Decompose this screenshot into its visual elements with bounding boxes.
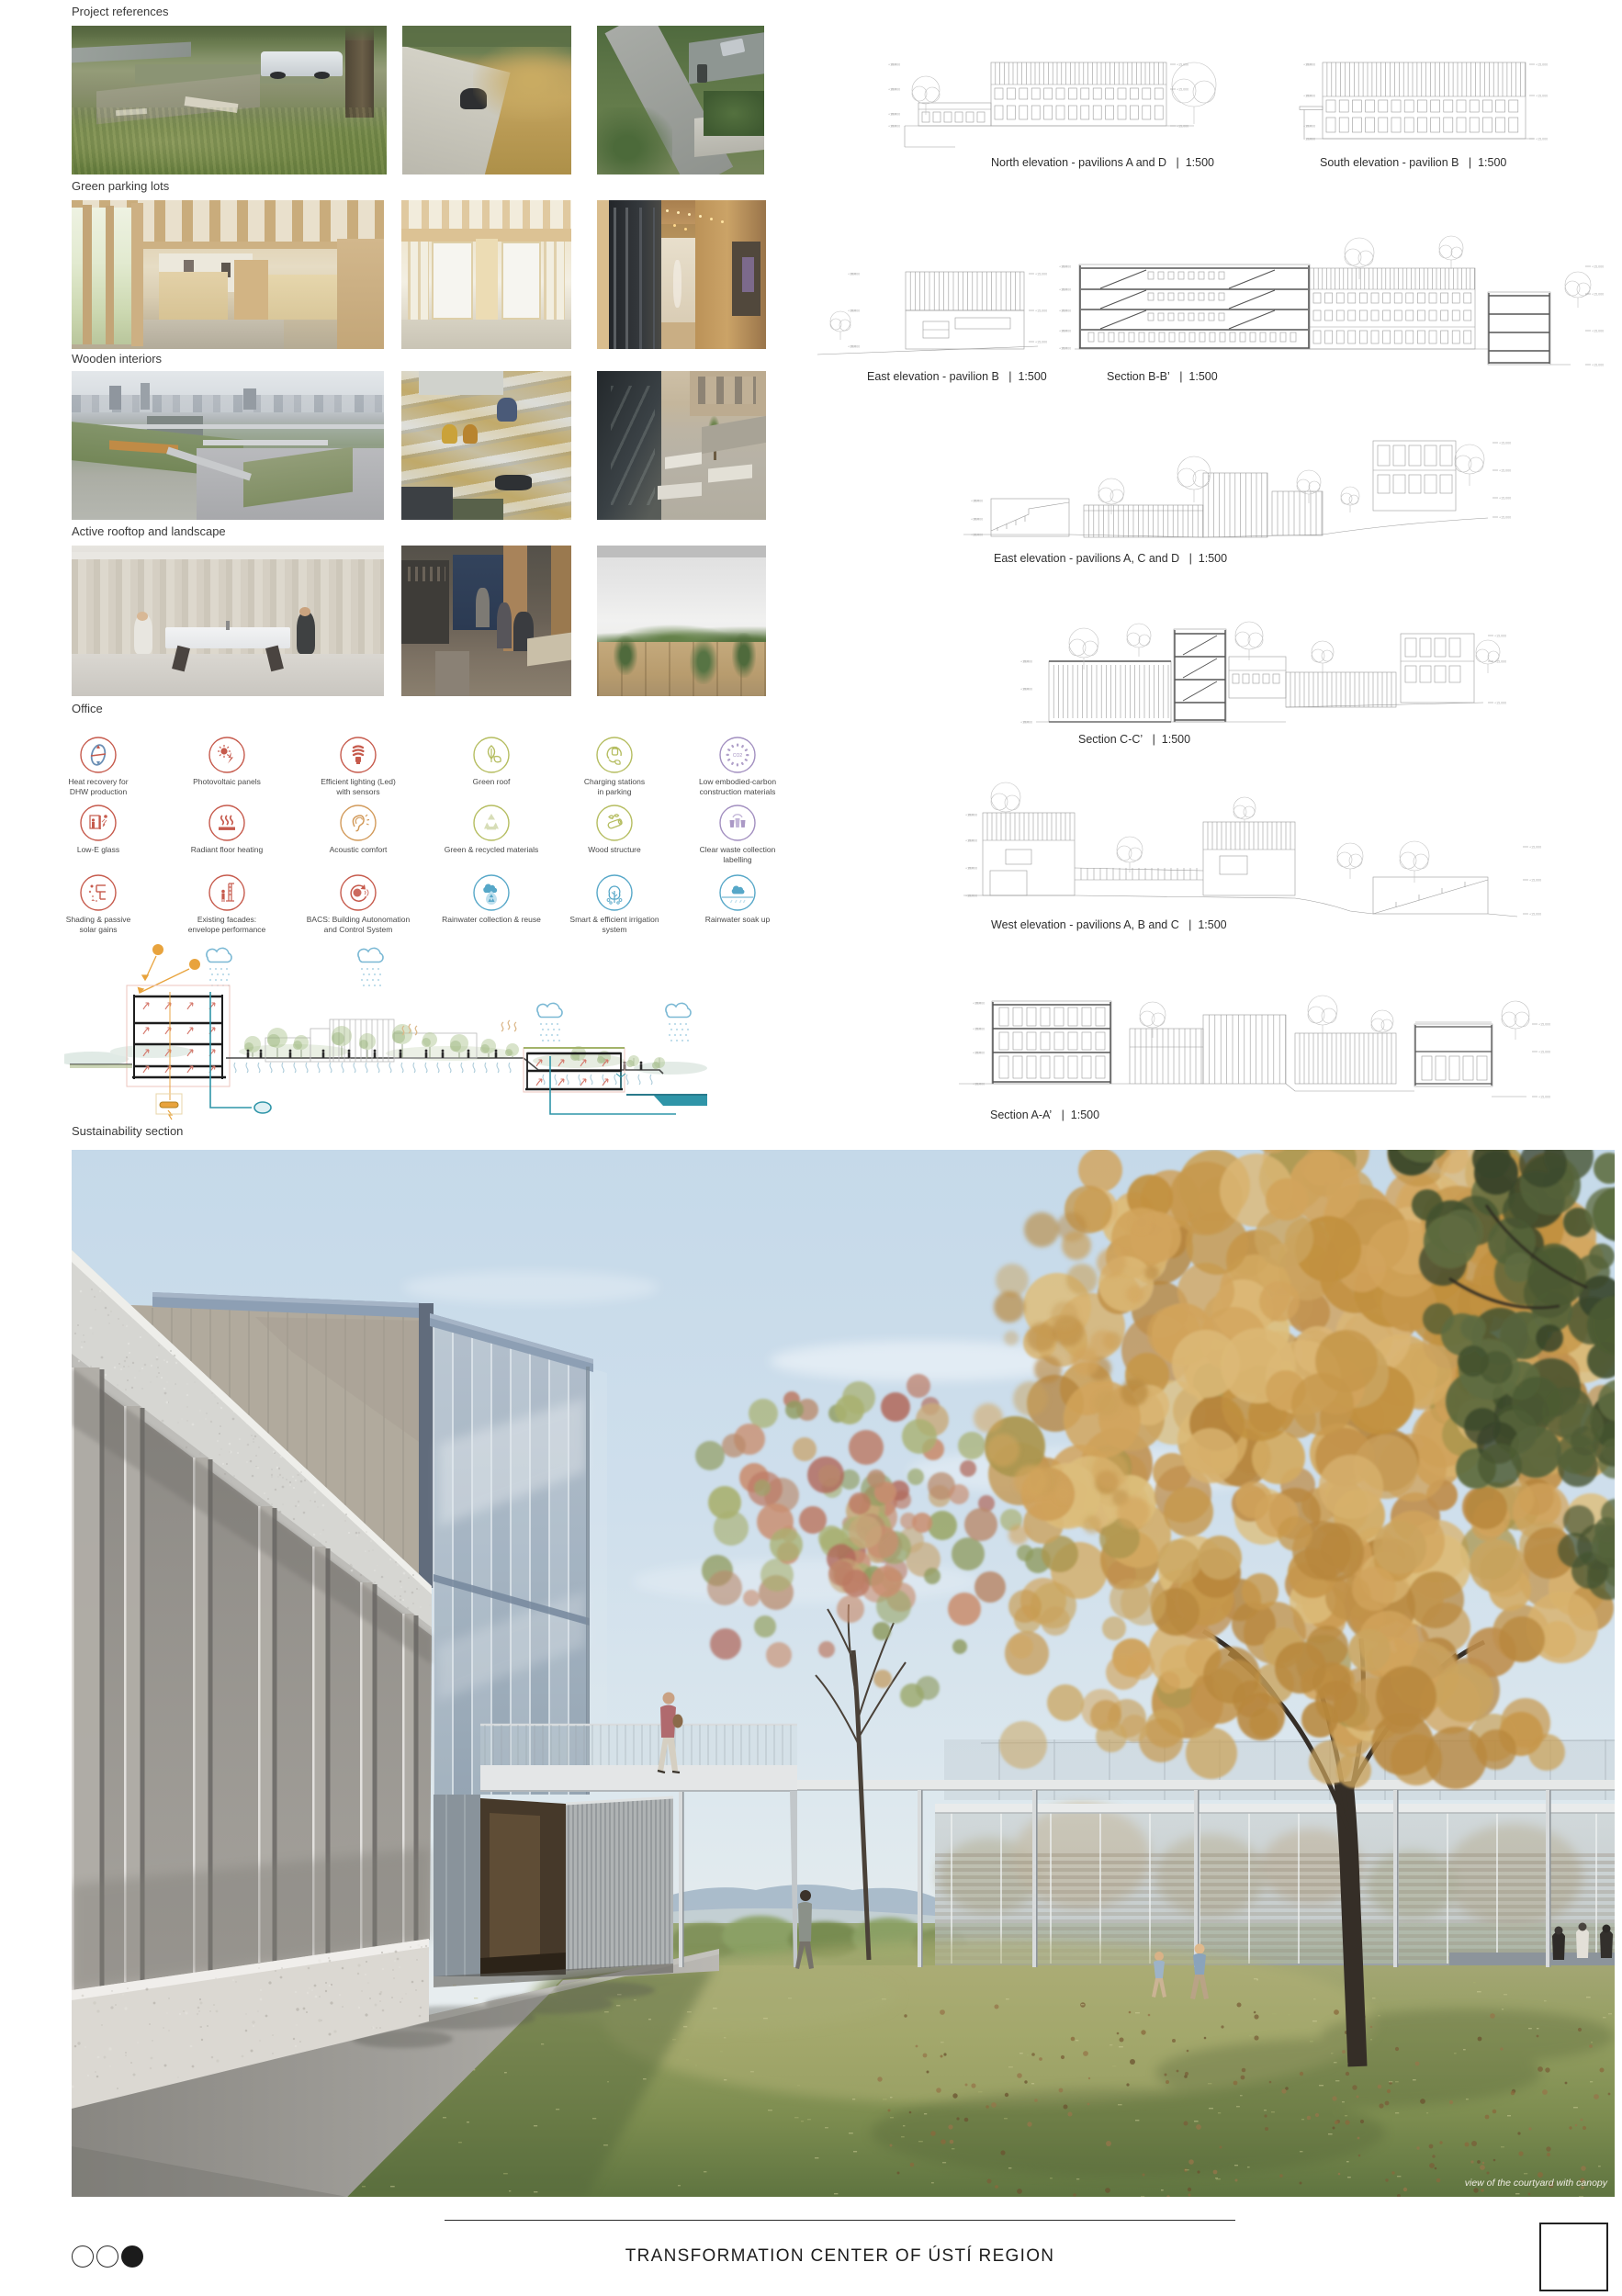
svg-text:+15,000: +15,000 [971, 500, 983, 503]
svg-text:+15,000: +15,000 [1538, 1023, 1550, 1027]
svg-text:+15,000: +15,000 [965, 895, 977, 898]
svg-text:+15,000: +15,000 [1177, 125, 1188, 129]
svg-text:+15,000: +15,000 [1494, 702, 1506, 705]
svg-text:+15,000: +15,000 [1536, 138, 1548, 141]
svg-text:+15,000: +15,000 [1499, 469, 1511, 473]
svg-text:view of the courtyard with can: view of the courtyard with canopy [1465, 2178, 1608, 2189]
svg-text:+15,000: +15,000 [1592, 364, 1604, 367]
svg-text:+15,000: +15,000 [1529, 913, 1541, 917]
svg-text:+15,000: +15,000 [848, 273, 860, 276]
svg-text:+15,000: +15,000 [848, 310, 860, 313]
svg-text:+15,000: +15,000 [848, 345, 860, 349]
svg-text:+15,000: +15,000 [1059, 347, 1071, 351]
svg-text:+15,000: +15,000 [1020, 721, 1032, 725]
svg-text:+15,000: +15,000 [1059, 330, 1071, 333]
svg-text:+15,000: +15,000 [965, 839, 977, 843]
svg-text:+15,000: +15,000 [1059, 310, 1071, 313]
svg-text:+15,000: +15,000 [973, 1028, 985, 1031]
svg-text:+15,000: +15,000 [1536, 63, 1548, 67]
svg-text:+15,000: +15,000 [1020, 660, 1032, 664]
svg-text:+15,000: +15,000 [1303, 63, 1315, 67]
svg-text:+15,000: +15,000 [971, 518, 983, 522]
svg-text:+15,000: +15,000 [965, 867, 977, 871]
svg-text:+15,000: +15,000 [1035, 341, 1047, 344]
svg-text:+15,000: +15,000 [888, 63, 900, 67]
svg-text:+15,000: +15,000 [973, 1052, 985, 1055]
svg-text:+15,000: +15,000 [1303, 95, 1315, 98]
svg-text:+15,000: +15,000 [888, 125, 900, 129]
svg-text:+15,000: +15,000 [888, 88, 900, 92]
svg-text:+15,000: +15,000 [973, 1002, 985, 1006]
svg-text:+15,000: +15,000 [1538, 1051, 1550, 1054]
svg-text:+15,000: +15,000 [1177, 88, 1188, 92]
svg-text:+15,000: +15,000 [1494, 635, 1506, 638]
svg-text:+15,000: +15,000 [1059, 288, 1071, 292]
svg-text:+15,000: +15,000 [1499, 497, 1511, 501]
svg-text:+15,000: +15,000 [1499, 442, 1511, 445]
svg-text:+15,000: +15,000 [1592, 265, 1604, 269]
svg-text:+15,000: +15,000 [1592, 330, 1604, 333]
svg-text:+15,000: +15,000 [1538, 1096, 1550, 1099]
svg-text:CO2: CO2 [733, 753, 743, 759]
svg-text:+15,000: +15,000 [973, 1083, 985, 1086]
svg-text:+15,000: +15,000 [1592, 293, 1604, 297]
svg-text:+15,000: +15,000 [1499, 516, 1511, 520]
svg-text:+15,000: +15,000 [1536, 95, 1548, 98]
svg-text:+15,000: +15,000 [1059, 265, 1071, 269]
svg-text:+15,000: +15,000 [1035, 273, 1047, 276]
svg-text:+15,000: +15,000 [965, 814, 977, 817]
svg-text:+15,000: +15,000 [971, 534, 983, 537]
svg-text:+15,000: +15,000 [888, 113, 900, 117]
svg-text:+15,000: +15,000 [1020, 688, 1032, 692]
svg-text:+15,000: +15,000 [1303, 138, 1315, 141]
svg-text:+15,000: +15,000 [1494, 660, 1506, 664]
svg-text:+15,000: +15,000 [1303, 125, 1315, 129]
svg-text:+15,000: +15,000 [1177, 63, 1188, 67]
svg-text:+15,000: +15,000 [1035, 310, 1047, 313]
svg-text:+15,000: +15,000 [1529, 846, 1541, 850]
svg-text:+15,000: +15,000 [1529, 879, 1541, 883]
